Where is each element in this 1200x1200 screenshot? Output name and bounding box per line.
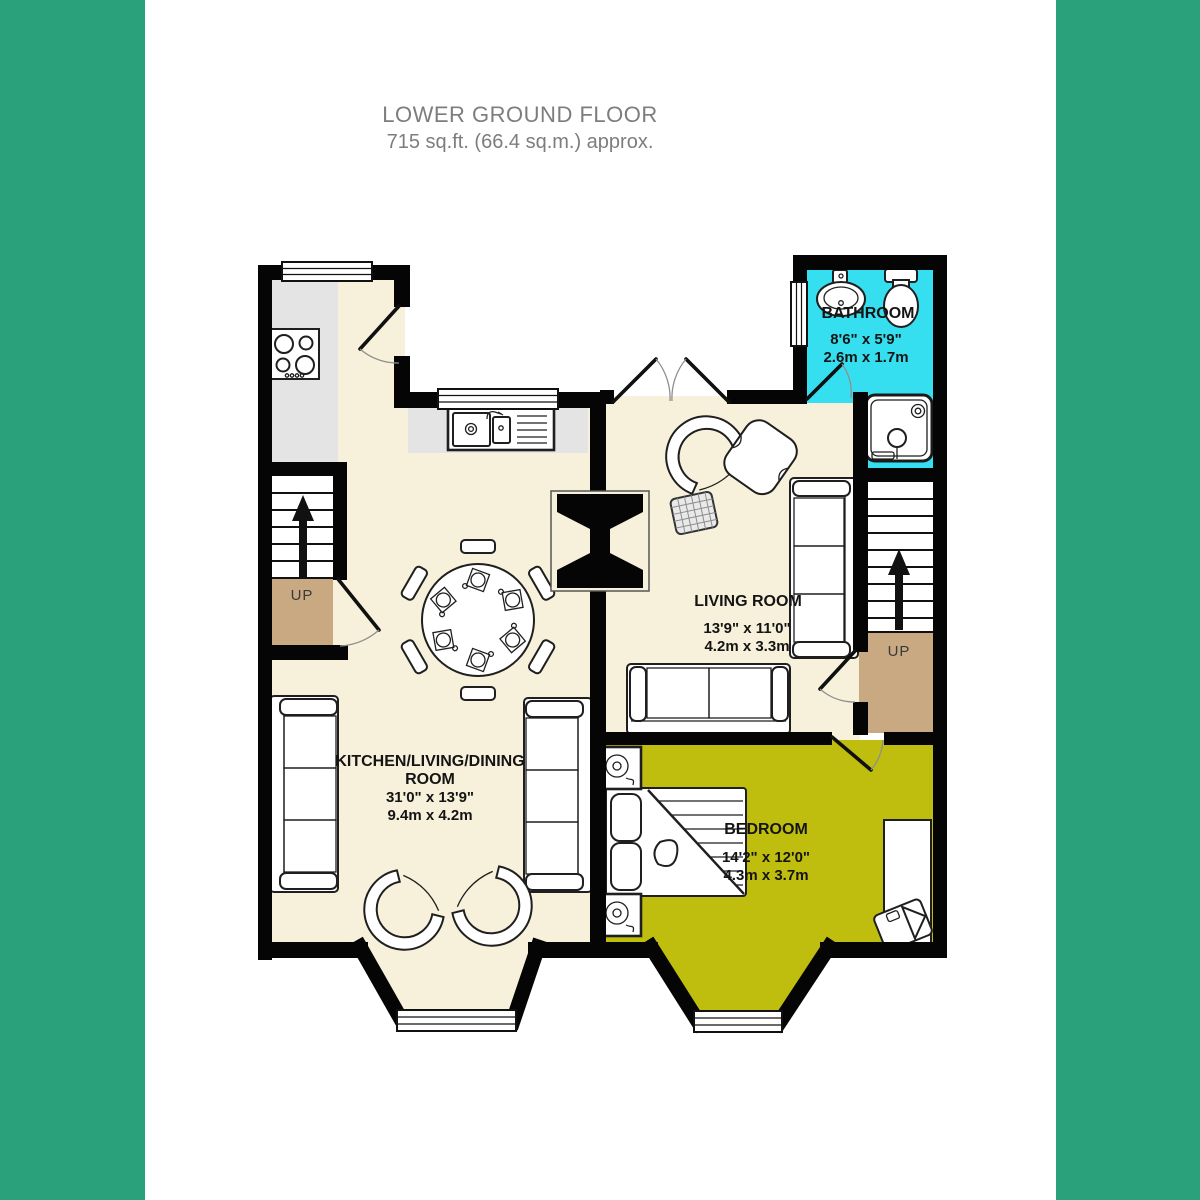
- window: [282, 262, 372, 281]
- floor-title: LOWER GROUND FLOOR: [382, 102, 657, 127]
- shower-icon: [866, 395, 932, 461]
- floor-area-subtitle: 715 sq.ft. (66.4 sq.m.) approx.: [387, 131, 654, 153]
- living-room-dims-imperial: 13'9" x 11'0": [703, 620, 790, 637]
- sofa-left: [270, 696, 338, 892]
- stove-icon: [270, 329, 319, 379]
- window: [791, 282, 807, 346]
- kitchen-sink-icon: [448, 408, 554, 450]
- window: [438, 389, 558, 409]
- stairs-right-up-label: UP: [888, 643, 911, 660]
- chimney-breast: [551, 491, 649, 591]
- bathroom-label: BATHROOM: [821, 305, 914, 322]
- kitchen-dims-metric: 9.4m x 4.2m: [387, 807, 472, 824]
- window: [397, 1010, 516, 1031]
- kitchen-label-line2: ROOM: [405, 771, 455, 788]
- floorplan-image: LOWER GROUND FLOOR 715 sq.ft. (66.4 sq.m…: [0, 0, 1200, 1200]
- left-green-bar: [0, 0, 145, 1200]
- living-room-dims-metric: 4.2m x 3.3m: [704, 638, 789, 655]
- bathroom-dims-imperial: 8'6" x 5'9": [830, 331, 901, 348]
- right-green-bar: [1056, 0, 1200, 1200]
- sofa-middle: [524, 698, 592, 892]
- bedroom-label: BEDROOM: [724, 821, 808, 838]
- bedroom-dims-metric: 4.3m x 3.7m: [723, 867, 808, 884]
- kitchen-label-line1: KITCHEN/LIVING/DINING: [335, 753, 524, 770]
- bathroom-dims-metric: 2.6m x 1.7m: [823, 349, 908, 366]
- kitchen-dims-imperial: 31'0" x 13'9": [386, 789, 474, 806]
- stairs-left-up-label: UP: [291, 587, 314, 604]
- side-stool: [670, 491, 719, 535]
- sofa-living-bottom: [627, 664, 790, 734]
- bedroom-dims-imperial: 14'2" x 12'0": [722, 849, 810, 866]
- window: [694, 1011, 782, 1032]
- sofa-living-right: [790, 478, 858, 658]
- living-room-label: LIVING ROOM: [694, 593, 802, 610]
